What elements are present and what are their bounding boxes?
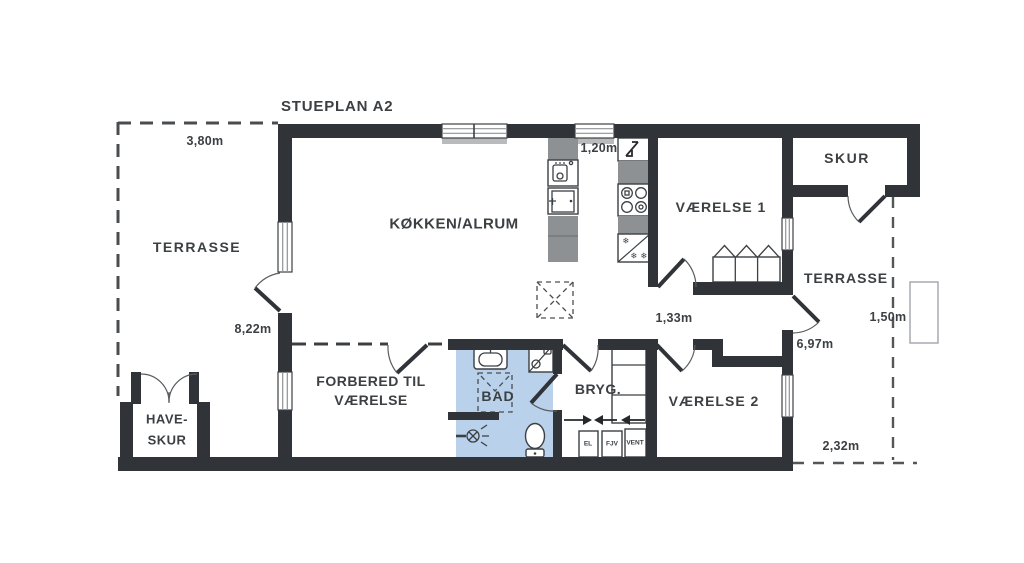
counter-segment	[618, 161, 650, 184]
wall-right	[782, 417, 793, 457]
dimension-house-length: 8,22m	[235, 322, 272, 336]
room-label-vaerelse2: VÆRELSE 2	[669, 393, 760, 409]
wardrobe	[713, 246, 780, 283]
wall-right	[782, 330, 793, 375]
kitchen-counters	[442, 138, 650, 262]
terrasse-left-boundary	[118, 122, 278, 396]
room-label-forbered-line1: FORBERED TIL	[316, 373, 425, 389]
door-leaf-vaerelse2	[657, 345, 682, 371]
room-label-kokken-alrum: KØKKEN/ALRUM	[389, 216, 518, 233]
window	[278, 222, 292, 272]
wall-middle	[448, 339, 563, 350]
snowflake-icon: ❄	[641, 252, 648, 261]
terrasse-right-boundary	[793, 197, 938, 463]
dimension-wall-length: 6,97m	[797, 337, 834, 351]
window	[575, 124, 614, 138]
door-arc-haveskur-left	[141, 374, 169, 402]
door-arc	[793, 322, 819, 333]
door-arc	[255, 273, 280, 288]
wall-left	[278, 138, 292, 222]
wall-bad-right	[553, 350, 562, 374]
snowflake-icon: ❄	[631, 252, 638, 261]
wall-bryg-v2	[646, 350, 657, 457]
wall-v2-top	[712, 356, 783, 367]
room-label-terrasse-right: TERRASSE	[804, 270, 888, 286]
counter-segment	[618, 216, 650, 234]
dimension-terrasse-depth: 2,32m	[823, 439, 860, 453]
wardrobe-body	[713, 257, 780, 282]
room-label-haveskur-line1: HAVE-	[146, 412, 188, 427]
window	[782, 218, 793, 250]
room-label-haveskur-line2: SKUR	[148, 433, 187, 448]
dimension-window-width: 1,20m	[581, 141, 618, 155]
window	[782, 375, 793, 417]
wall-skur-bottom	[793, 185, 848, 197]
wall-shower-partition	[448, 412, 499, 420]
room-label-vaerelse1: VÆRELSE 1	[676, 199, 767, 215]
dimension-opening-width: 1,33m	[656, 311, 693, 325]
room-label-terrasse-left: TERRASSE	[153, 239, 241, 255]
arrow-left-head	[594, 415, 603, 425]
door-arc	[848, 196, 859, 222]
terrasse-step	[910, 282, 938, 343]
plan-title: STUEPLAN A2	[281, 98, 393, 115]
wall-right	[782, 138, 793, 218]
skylight-marker	[537, 282, 573, 318]
door-arc	[591, 345, 598, 371]
floorplan-canvas: STUEPLAN A2 3,80m TERRASSE KØKKEN/ALRUM …	[0, 0, 1024, 563]
wall-haveskur-post	[131, 372, 141, 404]
toilet-button	[534, 452, 537, 455]
wall-bottom	[118, 457, 793, 471]
wall-haveskur-post	[189, 372, 199, 404]
door-leaf-bryggers	[563, 345, 591, 371]
wall-kitchen-v1	[648, 138, 658, 287]
utility-label-el: EL	[584, 441, 592, 448]
dot	[555, 162, 557, 164]
snowflake-icon: ❄	[623, 237, 630, 246]
wall-middle	[598, 339, 658, 350]
room-label-skur: SKUR	[824, 150, 870, 166]
wardrobe-door-marks	[714, 246, 779, 258]
window	[278, 372, 292, 410]
wall-skur-bottom	[885, 185, 920, 197]
door-arc	[388, 345, 397, 373]
wall-haveskur-left	[120, 402, 133, 462]
dot	[570, 200, 573, 203]
arrow-right-head	[583, 415, 592, 425]
dashed-square	[537, 282, 573, 318]
room-label-bryggers: BRYG.	[575, 381, 621, 397]
wall-haveskur-right	[197, 402, 210, 462]
dimension-step-width: 1,50m	[870, 310, 907, 324]
door-leaf-terrasse-right	[793, 296, 819, 322]
counter-segment	[548, 138, 578, 160]
counter-segment	[548, 216, 578, 262]
wall-bad-right	[553, 410, 562, 457]
dot	[559, 162, 561, 164]
utility-label-vent: VENT	[626, 440, 643, 447]
door-leaf-skur	[859, 196, 885, 222]
door-leaf-forbered	[397, 345, 427, 373]
toilet-bowl	[526, 424, 545, 449]
utility-label-fjv: FJV	[606, 441, 618, 448]
room-label-forbered-line2: VÆRELSE	[334, 392, 408, 408]
wall-left	[278, 410, 292, 457]
dot	[563, 162, 565, 164]
wall-v1-bottom	[693, 282, 793, 295]
room-label-bad: BAD	[481, 388, 514, 404]
dimension-terrasse-width: 3,80m	[187, 134, 224, 148]
window-sill	[442, 138, 507, 144]
wall-left	[278, 313, 292, 372]
door-leaf-terrasse-left	[255, 288, 280, 311]
door-leaf-vaerelse1	[658, 259, 684, 287]
dashed-cross	[537, 282, 573, 318]
